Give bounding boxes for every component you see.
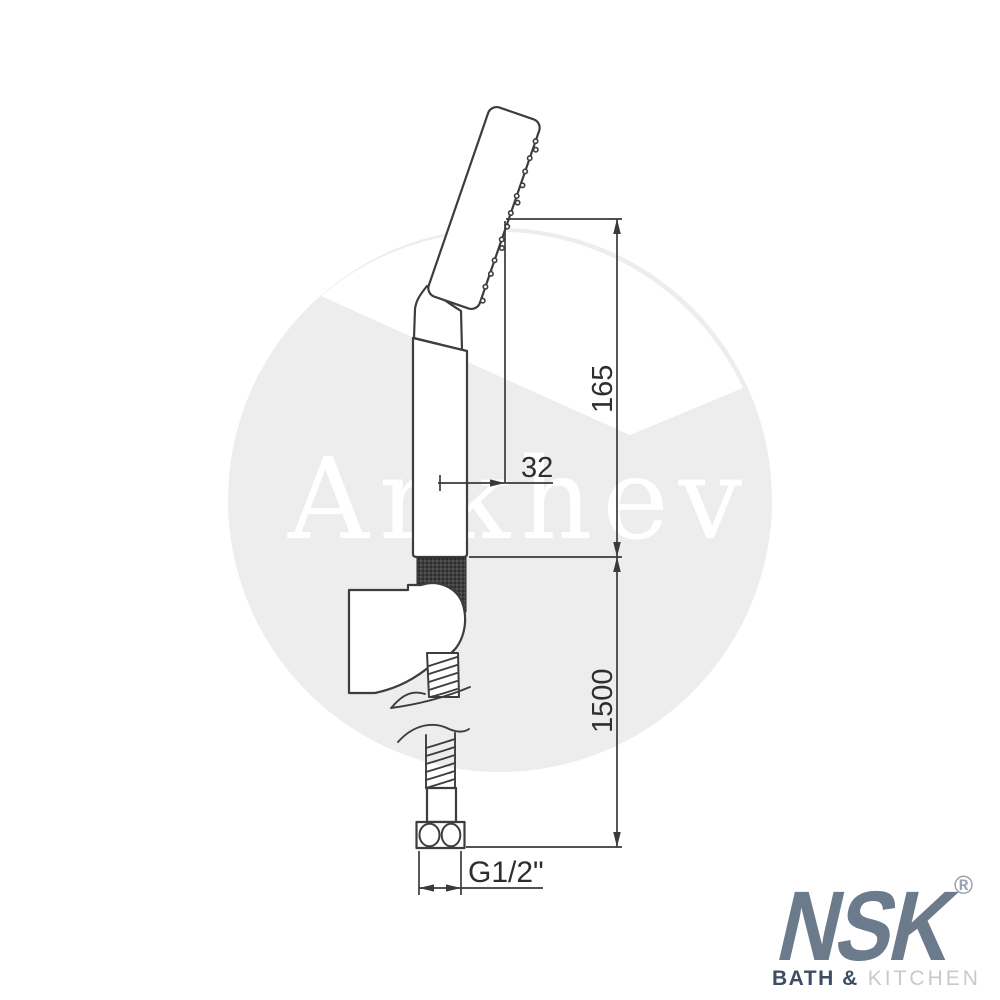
brand-tagline-bath: BATH &: [772, 967, 859, 990]
shower-hose-upper-segment: [427, 653, 459, 697]
brand-name: NSK: [770, 876, 963, 975]
dimension-label-thread: G1/2": [468, 856, 544, 889]
dimension-label-165: 165: [587, 365, 619, 413]
dimension-label-32: 32: [521, 452, 553, 484]
shower-handle: [413, 338, 467, 557]
technical-drawing-page: Arkhev: [0, 0, 1000, 1000]
brand-logo: NSK ® BATH &KITCHEN: [762, 862, 990, 994]
hose-hex-nut: [417, 822, 465, 848]
registered-mark-icon: ®: [954, 870, 973, 901]
brand-tagline: BATH &KITCHEN: [772, 968, 981, 989]
watermark: Arkhev: [228, 228, 772, 772]
hose-ferrule: [427, 788, 456, 822]
watermark-text: Arkhev: [287, 435, 752, 565]
shower-set-technical-drawing: Arkhev: [0, 0, 1000, 1000]
brand-tagline-kitchen: KITCHEN: [868, 967, 981, 990]
dimension-label-1500: 1500: [587, 668, 619, 733]
dimension-g12: G1/2": [419, 851, 544, 895]
